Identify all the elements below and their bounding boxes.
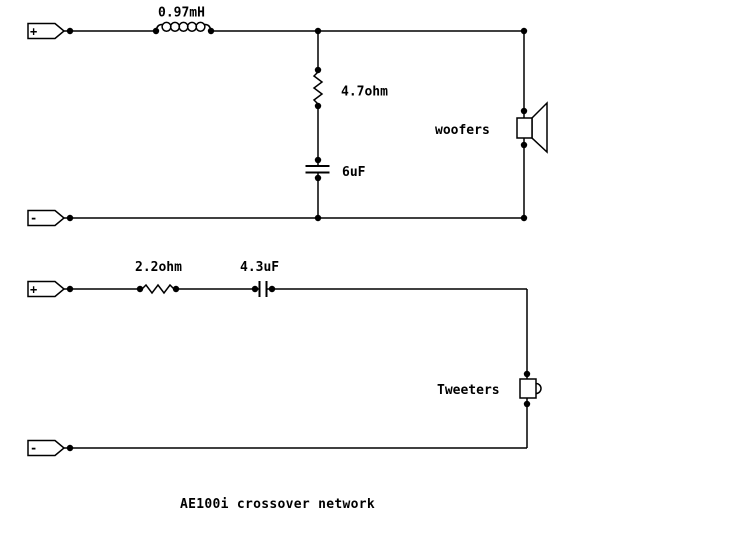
capacitor-4_3uF-icon [260, 281, 267, 297]
tweeter-negative-sign: - [30, 441, 37, 455]
woofer-circuit: + - 0.97mH 4.7ohm 6uF woofers [28, 6, 547, 226]
inductor-icon [156, 22, 211, 31]
woofers-label: woofers [435, 123, 490, 138]
inductor-label: 0.97mH [158, 6, 205, 21]
capacitor-6uF-label: 6uF [342, 165, 366, 180]
tweeter-positive-sign: + [30, 283, 37, 297]
schematic-canvas: + - 0.97mH 4.7ohm 6uF woofers [0, 0, 737, 544]
resistor-4_7ohm-label: 4.7ohm [341, 85, 388, 100]
resistor-4_7ohm-icon [314, 72, 322, 104]
tweeter-circuit: + - 2.2ohm 4.3uF Tweeters [28, 260, 541, 456]
diagram-caption: AE100i crossover network [180, 497, 375, 512]
capacitor-6uF-icon [306, 166, 330, 173]
tweeters-label: Tweeters [437, 383, 500, 398]
tweeter-speaker-icon [520, 379, 541, 398]
woofer-positive-sign: + [30, 25, 37, 39]
crossover-schematic: + - 0.97mH 4.7ohm 6uF woofers [0, 0, 737, 544]
capacitor-4_3uF-label: 4.3uF [240, 260, 279, 275]
woofer-negative-sign: - [30, 211, 37, 225]
tweeter-junction-dots [67, 286, 530, 451]
resistor-2_2ohm-label: 2.2ohm [135, 260, 182, 275]
resistor-2_2ohm-icon [142, 285, 174, 293]
